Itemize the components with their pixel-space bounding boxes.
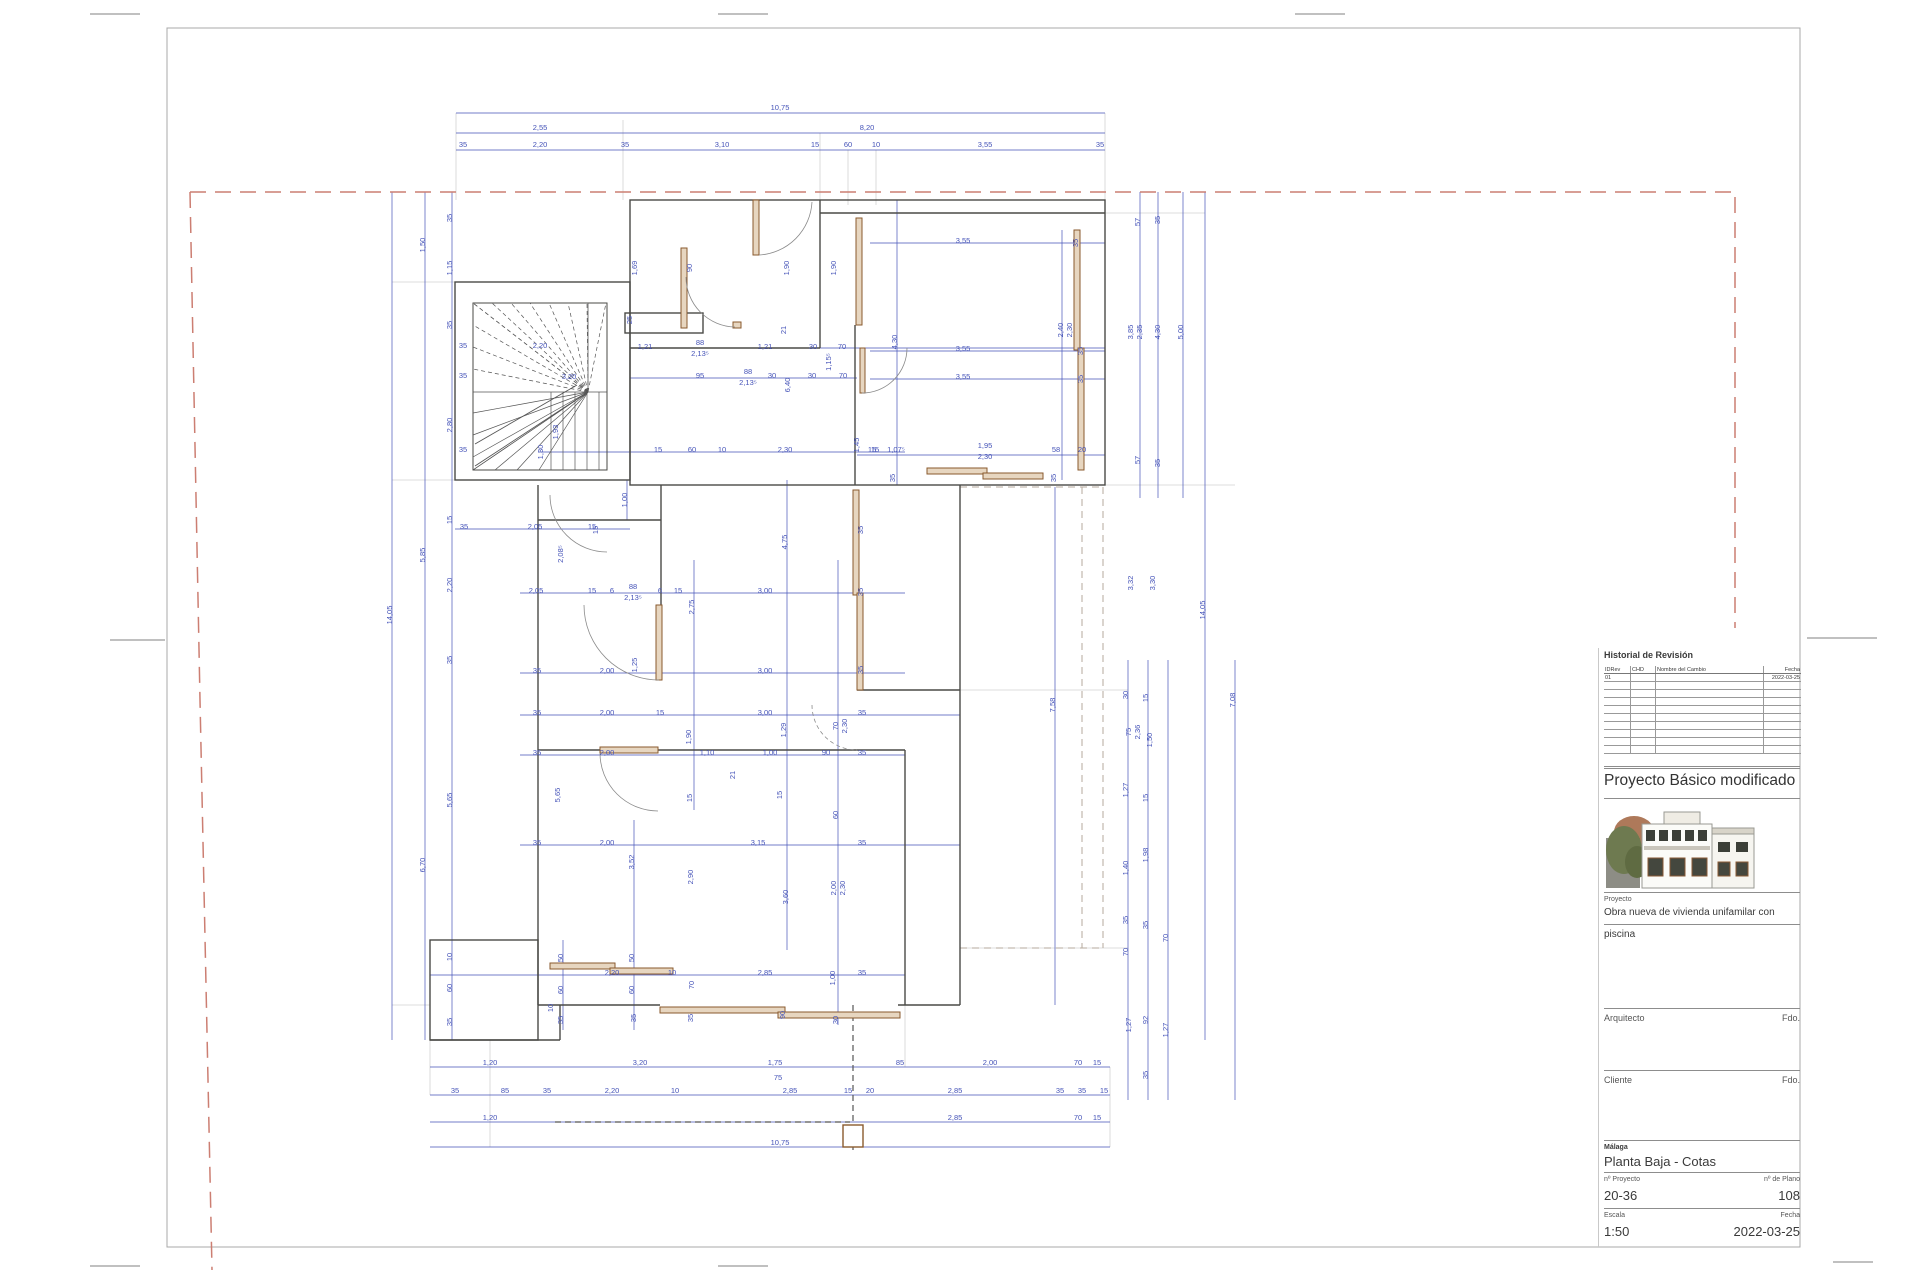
svg-text:15: 15 <box>775 791 784 799</box>
svg-text:60: 60 <box>831 811 840 819</box>
revision-row: 012022-03-25 <box>1604 674 1801 682</box>
svg-text:70: 70 <box>1074 1113 1082 1122</box>
svg-text:4,30: 4,30 <box>1153 325 1162 340</box>
svg-text:1,21: 1,21 <box>758 342 773 351</box>
revision-col-3: Nombre del Cambio <box>1656 666 1764 674</box>
svg-text:92: 92 <box>1141 1016 1150 1024</box>
svg-text:2,00: 2,00 <box>600 748 615 757</box>
revision-row <box>1604 690 1801 698</box>
svg-text:2,00: 2,00 <box>600 838 615 847</box>
svg-text:1,27: 1,27 <box>1121 783 1130 798</box>
revision-row <box>1604 746 1801 754</box>
svg-text:3,32: 3,32 <box>1126 576 1135 591</box>
svg-text:90: 90 <box>685 264 694 272</box>
svg-text:2,30: 2,30 <box>840 719 849 734</box>
svg-text:60: 60 <box>556 986 565 994</box>
svg-text:75: 75 <box>1124 728 1133 736</box>
svg-text:3,20: 3,20 <box>633 1058 648 1067</box>
svg-text:88: 88 <box>629 582 637 591</box>
svg-text:2,36: 2,36 <box>1133 725 1142 740</box>
svg-text:2,30: 2,30 <box>1065 323 1074 338</box>
svg-text:2,85: 2,85 <box>758 968 773 977</box>
svg-text:3,55: 3,55 <box>978 140 993 149</box>
svg-text:14,05: 14,05 <box>1198 601 1207 620</box>
svg-text:2,40: 2,40 <box>1056 323 1065 338</box>
svg-text:35: 35 <box>445 214 454 222</box>
svg-text:85: 85 <box>501 1086 509 1095</box>
svg-text:35: 35 <box>1121 916 1130 924</box>
svg-text:35: 35 <box>445 1018 454 1026</box>
svg-text:2,85: 2,85 <box>948 1113 963 1122</box>
svg-text:15: 15 <box>1100 1086 1108 1095</box>
svg-text:3,60: 3,60 <box>781 890 790 905</box>
svg-text:21: 21 <box>728 771 737 779</box>
svg-text:15: 15 <box>588 586 596 595</box>
svg-text:3,10: 3,10 <box>715 140 730 149</box>
svg-text:10: 10 <box>668 968 676 977</box>
svg-text:2,30: 2,30 <box>778 445 793 454</box>
svg-text:2,20: 2,20 <box>605 968 620 977</box>
client-signed-label: Fdo. <box>1782 1075 1800 1085</box>
svg-text:2,85: 2,85 <box>783 1086 798 1095</box>
svg-text:60: 60 <box>445 984 454 992</box>
sheet-title: Planta Baja - Cotas <box>1604 1154 1800 1169</box>
svg-text:70: 70 <box>1121 948 1130 956</box>
svg-text:35: 35 <box>533 838 541 847</box>
svg-text:35: 35 <box>1049 474 1058 482</box>
svg-text:15: 15 <box>868 445 876 454</box>
svg-text:30: 30 <box>831 1016 840 1024</box>
svg-text:1,93: 1,93 <box>551 425 560 440</box>
svg-text:2,00: 2,00 <box>600 666 615 675</box>
svg-text:60: 60 <box>688 445 696 454</box>
title-block: Historial de Revisión IDRevCHDNombre del… <box>1598 648 1803 1247</box>
svg-text:35: 35 <box>533 666 541 675</box>
svg-text:15: 15 <box>1141 694 1150 702</box>
svg-text:1,30: 1,30 <box>536 445 545 460</box>
svg-text:2,00: 2,00 <box>600 708 615 717</box>
svg-text:10,75: 10,75 <box>771 1138 790 1147</box>
svg-text:35: 35 <box>445 656 454 664</box>
svg-text:35: 35 <box>460 522 468 531</box>
svg-text:95: 95 <box>696 371 704 380</box>
svg-text:1,25: 1,25 <box>630 658 639 673</box>
svg-text:10: 10 <box>718 445 726 454</box>
svg-text:5,85: 5,85 <box>418 548 427 563</box>
svg-text:35: 35 <box>1056 1086 1064 1095</box>
svg-text:50: 50 <box>556 954 565 962</box>
svg-text:1,00: 1,00 <box>828 971 837 986</box>
svg-text:1,20: 1,20 <box>483 1058 498 1067</box>
svg-text:35: 35 <box>1141 1071 1150 1079</box>
svg-text:1,90: 1,90 <box>829 261 838 276</box>
svg-text:3,00: 3,00 <box>758 708 773 717</box>
svg-text:3,00: 3,00 <box>758 666 773 675</box>
svg-text:70: 70 <box>839 371 847 380</box>
svg-text:4,75: 4,75 <box>780 535 789 550</box>
svg-text:35: 35 <box>459 371 467 380</box>
date-value: 2022-03-25 <box>1734 1224 1801 1239</box>
svg-text:15: 15 <box>1093 1058 1101 1067</box>
svg-text:1,95: 1,95 <box>978 441 993 450</box>
svg-text:15: 15 <box>591 526 600 534</box>
revision-row <box>1604 714 1801 722</box>
svg-text:1,29: 1,29 <box>779 723 788 738</box>
svg-text:3,30: 3,30 <box>1148 576 1157 591</box>
project-label: Proyecto <box>1604 896 1800 903</box>
date-label: Fecha <box>1781 1212 1800 1219</box>
svg-text:20: 20 <box>1078 445 1086 454</box>
svg-text:3,55: 3,55 <box>956 372 971 381</box>
svg-text:3,20: 3,20 <box>562 372 577 381</box>
svg-text:35: 35 <box>1076 347 1085 355</box>
svg-text:35: 35 <box>1078 1086 1086 1095</box>
svg-text:1,07⁵: 1,07⁵ <box>887 445 905 454</box>
svg-text:35: 35 <box>621 140 629 149</box>
svg-text:15: 15 <box>1141 794 1150 802</box>
svg-text:2,20: 2,20 <box>605 1086 620 1095</box>
revision-row <box>1604 698 1801 706</box>
svg-text:2,90: 2,90 <box>686 870 695 885</box>
revision-history-title: Historial de Revisión <box>1604 650 1800 660</box>
svg-text:1,15: 1,15 <box>445 261 454 276</box>
project-thumbnail <box>1604 806 1759 890</box>
revision-row <box>1604 730 1801 738</box>
revision-col-4: Fecha <box>1764 666 1802 674</box>
svg-text:1,10: 1,10 <box>700 748 715 757</box>
svg-text:6: 6 <box>658 586 662 595</box>
svg-text:2,13⁵: 2,13⁵ <box>624 593 642 602</box>
svg-text:3,00: 3,00 <box>758 586 773 595</box>
svg-text:35: 35 <box>888 474 897 482</box>
svg-text:2,75: 2,75 <box>687 600 696 615</box>
scale-label: Escala <box>1604 1212 1800 1219</box>
svg-text:35: 35 <box>459 445 467 454</box>
svg-text:25: 25 <box>625 316 634 324</box>
svg-text:70: 70 <box>1074 1058 1082 1067</box>
svg-text:3,52: 3,52 <box>627 855 636 870</box>
svg-text:85: 85 <box>896 1058 904 1067</box>
svg-text:30: 30 <box>768 371 776 380</box>
svg-text:4,30: 4,30 <box>890 335 899 350</box>
svg-text:35: 35 <box>533 708 541 717</box>
svg-text:35: 35 <box>1076 375 1085 383</box>
svg-text:35: 35 <box>686 1014 695 1022</box>
svg-text:70: 70 <box>1161 934 1170 942</box>
svg-text:2,13⁵: 2,13⁵ <box>739 378 757 387</box>
svg-text:70: 70 <box>831 722 840 730</box>
svg-text:6,40: 6,40 <box>783 378 792 393</box>
project-name-line1: Obra nueva de vivienda unifamilar con <box>1604 907 1800 918</box>
svg-text:35: 35 <box>556 1016 565 1024</box>
svg-text:2,55: 2,55 <box>533 123 548 132</box>
svg-text:30: 30 <box>808 371 816 380</box>
svg-text:88: 88 <box>744 367 752 376</box>
svg-text:35: 35 <box>856 526 865 534</box>
svg-text:14,05: 14,05 <box>385 606 394 625</box>
svg-text:10: 10 <box>671 1086 679 1095</box>
svg-text:7,58: 7,58 <box>1048 698 1057 713</box>
svg-text:1,98: 1,98 <box>1141 848 1150 863</box>
svg-text:35: 35 <box>1153 459 1162 467</box>
svg-text:35: 35 <box>629 1014 638 1022</box>
svg-text:1,50: 1,50 <box>418 238 427 253</box>
svg-text:15: 15 <box>674 586 682 595</box>
svg-text:10: 10 <box>872 140 880 149</box>
svg-text:15: 15 <box>811 140 819 149</box>
svg-text:5,65: 5,65 <box>445 793 454 808</box>
svg-text:15: 15 <box>844 1086 852 1095</box>
svg-text:1,27: 1,27 <box>1161 1023 1170 1038</box>
svg-text:2,30: 2,30 <box>978 452 993 461</box>
svg-text:88: 88 <box>696 338 704 347</box>
architect-signed-label: Fdo. <box>1782 1013 1800 1023</box>
svg-text:2,85: 2,85 <box>948 1086 963 1095</box>
svg-text:35: 35 <box>858 708 866 717</box>
svg-text:75: 75 <box>774 1073 782 1082</box>
svg-text:1,15⁵: 1,15⁵ <box>824 353 833 371</box>
svg-text:35: 35 <box>543 1086 551 1095</box>
svg-text:1,69: 1,69 <box>630 261 639 276</box>
svg-text:35: 35 <box>858 748 866 757</box>
svg-text:35: 35 <box>1153 216 1162 224</box>
svg-text:1,45: 1,45 <box>852 438 861 453</box>
svg-text:2,80: 2,80 <box>445 418 454 433</box>
revision-col-2: CHD <box>1631 666 1656 674</box>
svg-text:2,20: 2,20 <box>533 140 548 149</box>
svg-text:2,35: 2,35 <box>1135 325 1144 340</box>
svg-text:21: 21 <box>779 326 788 334</box>
svg-text:70: 70 <box>838 342 846 351</box>
svg-text:2,05: 2,05 <box>528 522 543 531</box>
svg-text:57: 57 <box>1133 456 1142 464</box>
drawing-sheet: 10,752,558,20352,20353,101560103,553514,… <box>0 0 1920 1280</box>
document-title: Proyecto Básico modificado <box>1604 772 1800 790</box>
svg-text:15: 15 <box>1093 1113 1101 1122</box>
svg-text:35: 35 <box>1141 921 1150 929</box>
project-no: 20-36 <box>1604 1188 1800 1203</box>
svg-text:6: 6 <box>610 586 614 595</box>
svg-text:2,05: 2,05 <box>529 586 544 595</box>
svg-text:2,08⁵: 2,08⁵ <box>556 545 565 563</box>
svg-text:3,15: 3,15 <box>751 838 766 847</box>
svg-text:35: 35 <box>459 341 467 350</box>
architect-label: Arquitecto <box>1604 1013 1800 1023</box>
plan-no: 108 <box>1778 1188 1800 1203</box>
svg-text:7,08: 7,08 <box>1228 693 1237 708</box>
svg-text:15: 15 <box>654 445 662 454</box>
svg-text:35: 35 <box>445 321 454 329</box>
svg-text:70: 70 <box>687 981 696 989</box>
svg-text:1,20: 1,20 <box>483 1113 498 1122</box>
client-label: Cliente <box>1604 1075 1800 1085</box>
svg-text:2,00: 2,00 <box>829 881 838 896</box>
svg-text:1,00: 1,00 <box>620 493 629 508</box>
revision-row <box>1604 722 1801 730</box>
svg-text:3,55: 3,55 <box>956 344 971 353</box>
svg-text:35: 35 <box>856 588 865 596</box>
revision-row <box>1604 706 1801 714</box>
svg-text:1,50: 1,50 <box>1145 733 1154 748</box>
revision-row <box>1604 682 1801 690</box>
svg-text:2,30: 2,30 <box>838 881 847 896</box>
svg-text:1,40: 1,40 <box>1121 861 1130 876</box>
svg-text:1,90: 1,90 <box>684 730 693 745</box>
plan-no-label: nº de Plano <box>1764 1176 1800 1183</box>
svg-text:60: 60 <box>844 140 852 149</box>
revision-table: IDRevCHDNombre del CambioFecha 012022-03… <box>1604 666 1801 754</box>
svg-text:60: 60 <box>627 986 636 994</box>
svg-text:35: 35 <box>451 1086 459 1095</box>
svg-text:20: 20 <box>866 1086 874 1095</box>
svg-text:58: 58 <box>1052 445 1060 454</box>
svg-text:15: 15 <box>656 708 664 717</box>
svg-text:90: 90 <box>822 748 830 757</box>
svg-text:5,00: 5,00 <box>1176 325 1185 340</box>
svg-text:2,20: 2,20 <box>533 341 548 350</box>
svg-text:35: 35 <box>858 968 866 977</box>
svg-text:1,21: 1,21 <box>638 342 653 351</box>
svg-text:35: 35 <box>533 748 541 757</box>
svg-text:15: 15 <box>685 794 694 802</box>
svg-text:10: 10 <box>445 953 454 961</box>
svg-text:10: 10 <box>546 1004 555 1012</box>
svg-text:2,00: 2,00 <box>983 1058 998 1067</box>
svg-text:35: 35 <box>858 838 866 847</box>
svg-text:2,13⁵: 2,13⁵ <box>691 349 709 358</box>
svg-text:8,20: 8,20 <box>860 123 875 132</box>
svg-text:35: 35 <box>459 140 467 149</box>
svg-text:3,85: 3,85 <box>1126 325 1135 340</box>
svg-text:30: 30 <box>809 342 817 351</box>
svg-text:57: 57 <box>1133 218 1142 226</box>
svg-text:3,55: 3,55 <box>956 236 971 245</box>
svg-text:1,00: 1,00 <box>763 748 778 757</box>
revision-row <box>1604 738 1801 746</box>
city-label: Málaga <box>1604 1144 1800 1151</box>
svg-text:6,70: 6,70 <box>418 858 427 873</box>
svg-text:90: 90 <box>778 1011 787 1019</box>
svg-text:2,20: 2,20 <box>445 578 454 593</box>
svg-text:15: 15 <box>445 516 454 524</box>
svg-text:10,75: 10,75 <box>771 103 790 112</box>
svg-text:1,90: 1,90 <box>782 261 791 276</box>
svg-text:50: 50 <box>627 954 636 962</box>
svg-text:35: 35 <box>1071 239 1080 247</box>
svg-text:35: 35 <box>856 666 865 674</box>
svg-text:5,65: 5,65 <box>553 788 562 803</box>
svg-text:1,27: 1,27 <box>1124 1018 1133 1033</box>
revision-col-1: IDRev <box>1604 666 1631 674</box>
svg-text:35: 35 <box>1096 140 1104 149</box>
svg-text:1,75: 1,75 <box>768 1058 783 1067</box>
svg-text:30: 30 <box>1121 691 1130 699</box>
project-name-line2: piscina <box>1604 929 1800 940</box>
